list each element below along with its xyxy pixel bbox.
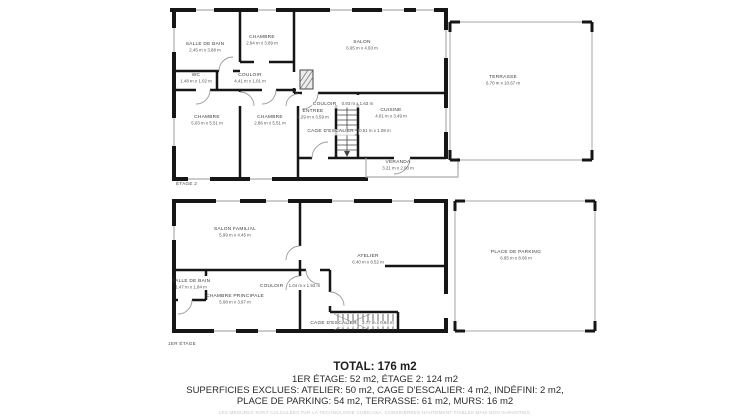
summary-excluded-1: SUPERFICIES EXCLUES: ATELIER: 50 m2, CAG… [0,386,750,396]
etage2-wall-gaps [174,10,446,179]
floor-tag-1er-etage: 1ER ÉTAGE [168,342,196,347]
floor-plan-page: SALLE DE BAIN 2.45 m x 3.88 m CHAMBRE 2.… [0,0,750,420]
floor-plan-walls-layer [0,0,750,420]
etage1-door-arcs [178,246,344,314]
summary-excluded-2: PLACE DE PARKING: 54 m2, TERRASSE: 61 m2… [0,397,750,407]
terrasse-outline [366,22,592,177]
measurement-disclaimer: LES MESURES SONT CALCULÉES PAR LA TECHNO… [83,411,668,416]
etage1-staircase [334,314,393,330]
etage1-walls [172,199,448,333]
etage2-staircase [337,107,357,157]
chimney-hatch [300,70,313,89]
parking-outline [455,201,595,331]
area-summary: TOTAL: 176 m2 1ER ÉTAGE: 52 m2, ÉTAGE 2:… [0,361,750,417]
summary-total: TOTAL: 176 m2 [0,361,750,374]
summary-floors: 1ER ÉTAGE: 52 m2, ÉTAGE 2: 124 m2 [0,375,750,385]
floor-tag-etage2: ÉTAGE 2 [176,182,197,187]
